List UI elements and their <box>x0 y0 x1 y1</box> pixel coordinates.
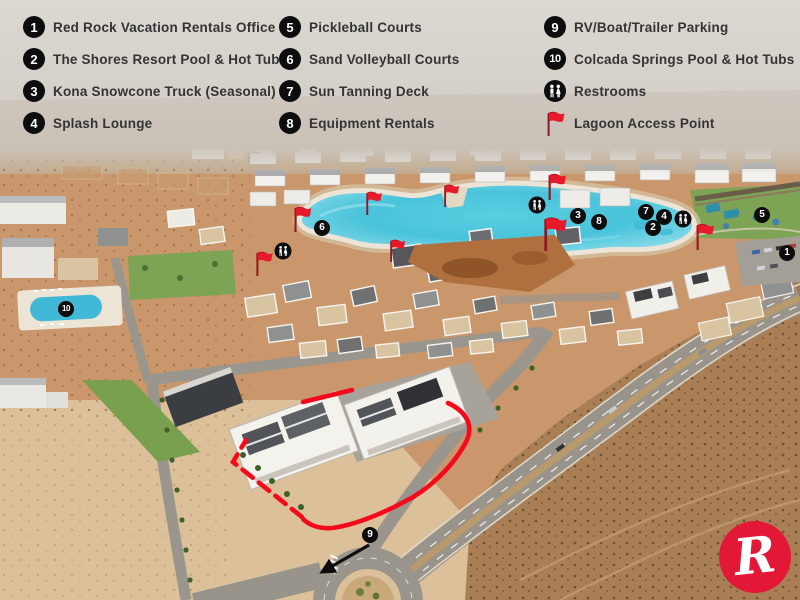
legend-item-colcada-springs: 10 Colcada Springs Pool & Hot Tubs <box>544 48 794 70</box>
legend-label: The Shores Resort Pool & Hot Tub <box>53 52 280 67</box>
legend-item-sand-volleyball: 6 Sand Volleyball Courts <box>279 48 459 70</box>
legend-item-splash-lounge: 4 Splash Lounge <box>23 112 280 134</box>
legend-label: Splash Lounge <box>53 116 152 131</box>
legend-marker-9: 9 <box>544 16 566 38</box>
legend-label: Sand Volleyball Courts <box>309 52 459 67</box>
legend-label: Sun Tanning Deck <box>309 84 429 99</box>
legend-marker-6: 6 <box>279 48 301 70</box>
legend-column-2: 5 Pickleball Courts 6 Sand Volleyball Co… <box>279 16 459 134</box>
legend-marker-10: 10 <box>544 48 566 70</box>
legend-item-restrooms: Restrooms <box>544 80 794 102</box>
legend-label: Equipment Rentals <box>309 116 435 131</box>
legend-item-rv-parking: 9 RV/Boat/Trailer Parking <box>544 16 794 38</box>
legend-label: Kona Snowcone Truck (Seasonal) <box>53 84 276 99</box>
legend-column-3: 9 RV/Boat/Trailer Parking 10 Colcada Spr… <box>544 16 794 134</box>
legend-label: Restrooms <box>574 84 646 99</box>
legend-marker-5: 5 <box>279 16 301 38</box>
legend-item-lagoon-access: Lagoon Access Point <box>544 112 794 134</box>
restrooms-icon <box>544 80 566 102</box>
legend-marker-3: 3 <box>23 80 45 102</box>
legend-marker-1: 1 <box>23 16 45 38</box>
brand-logo-letter: R <box>731 523 779 586</box>
legend-marker-4: 4 <box>23 112 45 134</box>
legend-item-snowcone-truck: 3 Kona Snowcone Truck (Seasonal) <box>23 80 280 102</box>
legend-item-equipment-rentals: 8 Equipment Rentals <box>279 112 459 134</box>
legend-column-1: 1 Red Rock Vacation Rentals Office 2 The… <box>23 16 280 134</box>
legend-marker-7: 7 <box>279 80 301 102</box>
legend-marker-2: 2 <box>23 48 45 70</box>
lagoon-flag-icon <box>544 112 566 134</box>
legend-label: RV/Boat/Trailer Parking <box>574 20 728 35</box>
legend-label: Pickleball Courts <box>309 20 422 35</box>
legend-item-sun-tanning-deck: 7 Sun Tanning Deck <box>279 80 459 102</box>
brand-logo: R <box>719 521 791 593</box>
legend-item-pickleball: 5 Pickleball Courts <box>279 16 459 38</box>
legend-label: Colcada Springs Pool & Hot Tubs <box>574 52 794 67</box>
legend-item-shores-pool: 2 The Shores Resort Pool & Hot Tub <box>23 48 280 70</box>
legend-label: Red Rock Vacation Rentals Office <box>53 20 275 35</box>
legend-marker-8: 8 <box>279 112 301 134</box>
legend-label: Lagoon Access Point <box>574 116 715 131</box>
legend-item-rentals-office: 1 Red Rock Vacation Rentals Office <box>23 16 280 38</box>
